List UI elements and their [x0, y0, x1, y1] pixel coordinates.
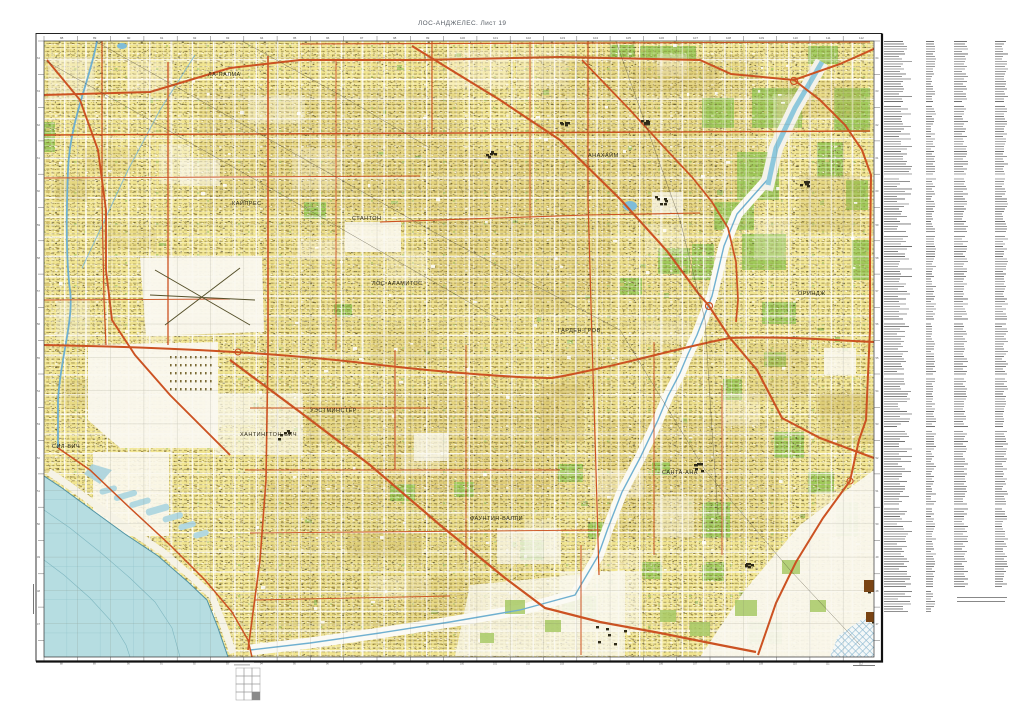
svg-text:109: 109 [759, 663, 764, 666]
svg-text:101: 101 [493, 36, 498, 40]
svg-text:91: 91 [160, 36, 164, 40]
svg-text:98: 98 [393, 36, 397, 40]
svg-text:111: 111 [826, 36, 831, 40]
svg-text:103: 103 [560, 36, 565, 40]
svg-text:106: 106 [659, 36, 664, 40]
svg-text:СИЛ-БИЧ: СИЛ-БИЧ [52, 444, 80, 450]
svg-text:95: 95 [293, 36, 297, 40]
svg-text:102: 102 [526, 36, 531, 40]
svg-text:89: 89 [93, 36, 97, 40]
svg-text:100: 100 [460, 36, 465, 40]
svg-text:108: 108 [726, 36, 731, 40]
svg-text:ОРИНДЖ: ОРИНДЖ [798, 291, 826, 297]
svg-text:88: 88 [60, 36, 64, 40]
svg-text:107: 107 [693, 663, 698, 666]
svg-text:106: 106 [659, 663, 664, 666]
svg-text:УЭСТМИНСТЕР: УЭСТМИНСТЕР [310, 408, 357, 414]
svg-text:109: 109 [759, 36, 764, 40]
svg-text:92: 92 [193, 36, 197, 40]
svg-text:94: 94 [260, 36, 264, 40]
svg-text:ГАРДЕН-ГРОВ: ГАРДЕН-ГРОВ [558, 328, 601, 334]
svg-text:105: 105 [626, 36, 631, 40]
svg-text:104: 104 [593, 663, 598, 666]
svg-text:93: 93 [226, 36, 230, 40]
svg-text:100: 100 [460, 663, 465, 666]
svg-text:103: 103 [560, 663, 565, 666]
svg-text:96: 96 [326, 36, 330, 40]
svg-text:107: 107 [693, 36, 698, 40]
svg-text:ХАНТИНГТОН-БИЧ: ХАНТИНГТОН-БИЧ [240, 432, 297, 438]
svg-text:90: 90 [127, 36, 131, 40]
svg-text:102: 102 [526, 663, 531, 666]
svg-text:110: 110 [793, 663, 797, 666]
svg-text:ЛА-ПАЛМА: ЛА-ПАЛМА [208, 72, 241, 78]
svg-text:99: 99 [426, 36, 430, 40]
svg-text:101: 101 [493, 663, 498, 666]
svg-text:97: 97 [360, 36, 364, 40]
svg-text:ЛОС-АЛАМИТОС: ЛОС-АЛАМИТОС [372, 281, 423, 287]
svg-text:105: 105 [626, 663, 631, 666]
svg-text:112: 112 [859, 36, 864, 40]
svg-text:108: 108 [726, 663, 731, 666]
svg-text:104: 104 [593, 36, 598, 40]
svg-text:ФАУНТИН-ВАЛЛИ: ФАУНТИН-ВАЛЛИ [470, 516, 523, 522]
svg-text:110: 110 [793, 36, 798, 40]
svg-text:САНТА-АНА: САНТА-АНА [662, 470, 698, 476]
svg-text:ЛОС-АНДЖЕЛЕС. Лист 19: ЛОС-АНДЖЕЛЕС. Лист 19 [418, 20, 506, 27]
svg-text:СТАНТОН: СТАНТОН [352, 216, 381, 222]
svg-text:КАЙПРЕС: КАЙПРЕС [232, 199, 262, 207]
svg-text:АНАХАЙМ: АНАХАЙМ [588, 151, 619, 159]
